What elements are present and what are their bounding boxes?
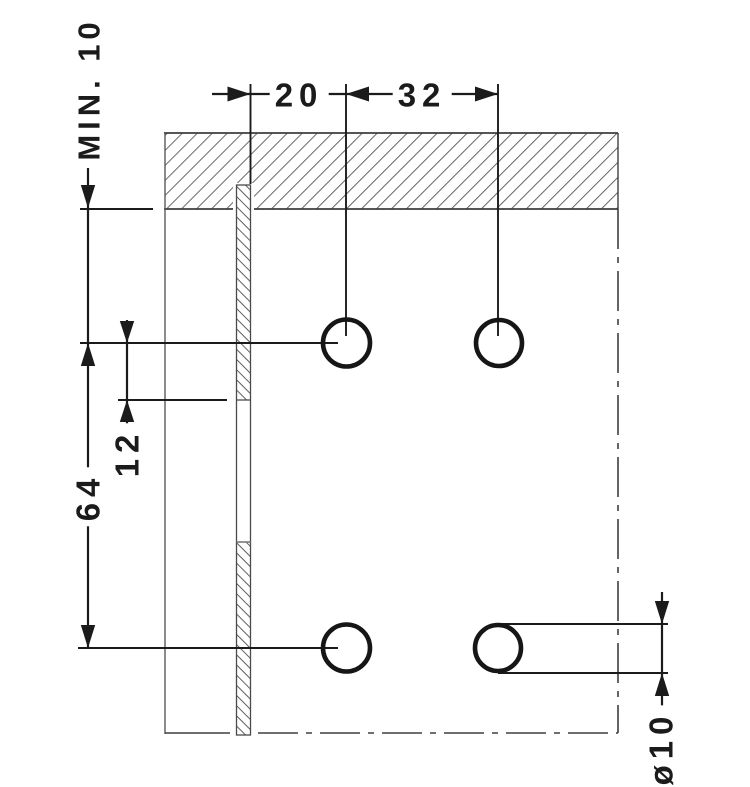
wall-hatch-fill bbox=[165, 133, 618, 209]
arrow-64-up bbox=[81, 343, 95, 366]
label-dim-32: 32 bbox=[393, 78, 452, 113]
arrow-12-up bbox=[120, 400, 134, 422]
arrow-64-down bbox=[81, 625, 95, 648]
strip-hatch-lower bbox=[237, 542, 251, 735]
label-dim-20: 20 bbox=[270, 78, 329, 113]
label-hole-diameter: ø10 bbox=[644, 706, 679, 787]
mounting-holes bbox=[323, 320, 522, 672]
strip-hatch-upper bbox=[237, 185, 251, 400]
label-dim-12: 12 bbox=[110, 424, 145, 483]
arrow-12-down bbox=[120, 321, 134, 343]
dimension-min-depth bbox=[80, 168, 153, 648]
bracket-strip bbox=[233, 183, 254, 736]
arrow-dia10-down bbox=[655, 601, 669, 624]
arrow-min10-down bbox=[81, 185, 95, 208]
arrow-dia10-up bbox=[655, 673, 669, 696]
dimension-vertical bbox=[78, 320, 338, 648]
wall-section bbox=[164, 133, 618, 209]
technical-drawing: MIN. 10 20 32 64 12 ø10 bbox=[0, 0, 750, 787]
label-min-depth: MIN. 10 bbox=[73, 12, 106, 165]
hole-top-right bbox=[476, 320, 522, 366]
drawing-canvas bbox=[0, 0, 750, 787]
arrow-20-right bbox=[228, 87, 251, 102]
dimension-horizontal bbox=[212, 84, 498, 336]
label-dim-64: 64 bbox=[71, 468, 106, 527]
arrow-32-left bbox=[346, 87, 369, 102]
panel-phantom-edges bbox=[165, 209, 618, 733]
hole-bottom-right bbox=[475, 625, 521, 671]
dimension-hole-diameter bbox=[498, 592, 669, 709]
arrow-32-right bbox=[475, 87, 498, 102]
